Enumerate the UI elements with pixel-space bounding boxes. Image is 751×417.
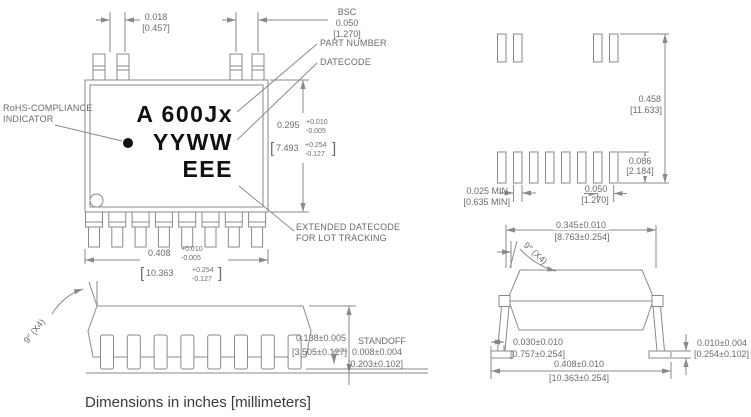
- dim-body-width: 0.408 +0.010 -0.005 [ 10.363 +0.254 -0.1…: [85, 246, 268, 283]
- land-pattern: 0.458 [11.633] 0.086 [2.184] 0.025 MIN […: [463, 34, 669, 207]
- dim-pitch-bsc: BSC: [338, 7, 357, 17]
- dim-pad-pitch: 0.050 [1.270]: [581, 184, 627, 205]
- drawing-svg: A 600Jx YYWW EEE RoHS-COMPLIANCE INDICAT…: [0, 0, 751, 417]
- rohs-dot: [123, 138, 133, 148]
- dim-pad-pitch-in: 0.050: [585, 184, 608, 194]
- dim-body-depth-mm-rb: ]: [332, 140, 336, 157]
- dim-land-span-in: 0.458: [638, 94, 661, 104]
- datecode-label: DATECODE: [320, 57, 371, 67]
- side-leads: [101, 335, 302, 369]
- end-view: 0.345±0.010 [8.763±0.254] 9° (X4): [491, 220, 749, 383]
- dim-body-depth-mm-tm: -0.127: [305, 151, 325, 158]
- dim-pad-width-in: 0.025 MIN: [466, 186, 508, 196]
- dim-pitch-mm: [1.270]: [333, 29, 361, 39]
- dim-body-width-tm: -0.005: [181, 255, 201, 262]
- bottom-pads: [498, 152, 619, 183]
- dim-height-in: 0.138±0.005: [296, 333, 346, 343]
- bottom-pins: [86, 212, 266, 247]
- dim-pad-width: 0.025 MIN [0.635 MIN]: [463, 185, 536, 207]
- top-pads: [498, 34, 619, 62]
- dim-overall-width-in: 0.408±0.010: [554, 359, 604, 369]
- dim-end-body-width-in: 0.345±0.010: [556, 220, 606, 230]
- dim-pad-width-mm: [0.635 MIN]: [463, 197, 510, 207]
- dim-body-depth: 0.295 +0.010 -0.005 [ 7.493 +0.254 -0.12…: [270, 80, 336, 212]
- dim-body-depth-tm: -0.005: [306, 128, 326, 135]
- dim-body-depth-mm-tp: +0.254: [305, 142, 327, 149]
- dim-standoff-in: 0.008±0.004: [352, 347, 402, 357]
- rohs-label-line1: RoHS-COMPLIANCE: [3, 103, 93, 113]
- top-pins: [93, 54, 264, 80]
- side-body: [88, 306, 311, 357]
- caption: Dimensions in inches [millimeters]: [85, 394, 311, 411]
- marking-part-number: A 600Jx: [136, 101, 233, 127]
- part-number-label: PART NUMBER: [320, 38, 387, 48]
- side-angle-callout: 9° (X4): [22, 281, 97, 345]
- dim-body-width-mm: 10.363: [146, 268, 174, 278]
- top-view: A 600Jx YYWW EEE RoHS-COMPLIANCE INDICAT…: [3, 7, 400, 283]
- dim-overall-width-mm: [10.363±0.254]: [549, 373, 609, 383]
- end-body: [507, 270, 655, 330]
- dim-body-depth-mm: 7.493: [276, 143, 299, 153]
- dim-body-depth-mm-lb: [: [270, 140, 275, 157]
- dim-end-body-width-mm: [8.763±0.254]: [555, 232, 610, 242]
- dim-pitch-in: 0.050: [336, 18, 359, 28]
- side-view: 9° (X4) 0.138±0.005 [3.505±0.127] STANDO…: [22, 281, 428, 385]
- dim-foot-length-mm: [0.757±0.254]: [510, 349, 565, 359]
- dim-lead-width: 0.018 [0.457]: [96, 12, 170, 52]
- dim-height-mm: [3.505±0.127]: [292, 347, 347, 357]
- rohs-label-line2: INDICATOR: [3, 114, 54, 124]
- pin1-indicator: [90, 194, 103, 207]
- ext-datecode-label-line2: FOR LOT TRACKING: [296, 233, 387, 243]
- dim-standoff-mm: [0.203±0.102]: [348, 359, 403, 369]
- marking-datecode: YYWW: [153, 129, 233, 155]
- dim-lead-width-in: 0.018: [145, 12, 168, 22]
- dim-pad-length-in: 0.086: [629, 156, 652, 166]
- dim-body-width-in: 0.408: [148, 248, 171, 258]
- ext-datecode-label-line1: EXTENDED DATECODE: [296, 222, 400, 232]
- dim-pad-length: 0.086 [2.184]: [619, 152, 656, 183]
- dim-pad-pitch-mm: [1.270]: [581, 195, 609, 205]
- end-lead-right: [649, 296, 671, 359]
- dim-overall-width: 0.408±0.010 [10.363±0.254]: [491, 359, 671, 383]
- package-dimension-drawing: A 600Jx YYWW EEE RoHS-COMPLIANCE INDICAT…: [0, 0, 751, 417]
- dim-land-span-mm: [11.633]: [630, 105, 662, 115]
- dim-body-depth-in: 0.295: [277, 120, 300, 130]
- standoff-label: STANDOFF: [358, 336, 406, 346]
- seating-plane: [86, 369, 428, 373]
- dim-body-width-mm-lb: [: [140, 265, 145, 282]
- dim-foot-length-in: 0.030±0.010: [513, 337, 563, 347]
- dim-body-depth-tp: +0.010: [306, 119, 328, 126]
- dim-lead-thickness-mm: [0.254±0.102]: [694, 349, 749, 359]
- dim-body-width-mm-rb: ]: [218, 265, 222, 282]
- dim-pad-length-mm: [2.184]: [626, 166, 654, 176]
- dim-body-width-mm-tp: +0.254: [192, 267, 214, 274]
- dim-lead-thickness: 0.010±0.004 [0.254±0.102]: [672, 334, 749, 375]
- dim-body-width-mm-tm: -0.127: [192, 276, 212, 283]
- marking-lot-code: EEE: [182, 156, 233, 182]
- dim-lead-thickness-in: 0.010±0.004: [697, 338, 747, 348]
- side-angle-label: 9° (X4): [22, 317, 47, 345]
- dim-lead-width-mm: [0.457]: [142, 23, 170, 33]
- dim-body-width-tp: +0.010: [181, 246, 203, 253]
